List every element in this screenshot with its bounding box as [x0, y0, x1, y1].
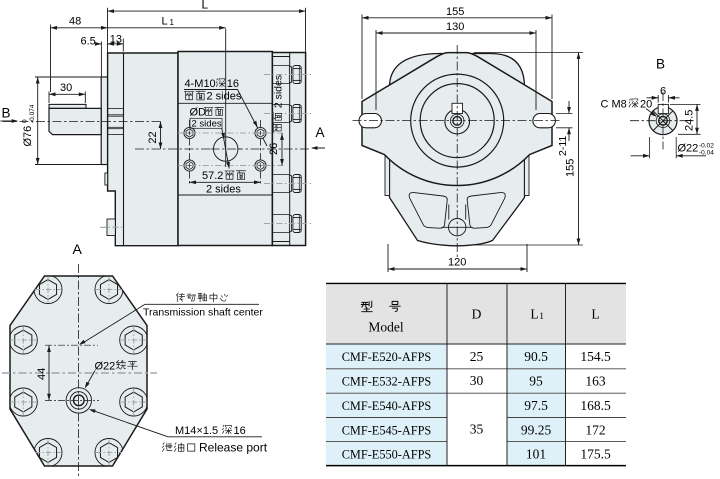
svg-text:1: 1: [170, 18, 175, 27]
svg-text:2 sides: 2 sides: [206, 184, 241, 196]
svg-text:25: 25: [470, 349, 484, 364]
svg-text:16: 16: [234, 425, 246, 437]
svg-text:101: 101: [526, 446, 546, 461]
svg-text:Ø22: Ø22: [678, 143, 699, 155]
svg-text:0: 0: [22, 119, 29, 123]
svg-text:CMF-E532-AFPS: CMF-E532-AFPS: [342, 375, 432, 389]
svg-text:Model: Model: [368, 320, 403, 335]
svg-text:-0.02: -0.02: [699, 143, 714, 150]
svg-text:1: 1: [539, 312, 544, 322]
svg-text:D: D: [472, 307, 482, 322]
svg-text:Ø76: Ø76: [22, 126, 34, 147]
svg-text:30: 30: [60, 82, 72, 94]
svg-text:16: 16: [227, 78, 239, 90]
svg-text:B: B: [2, 106, 11, 121]
svg-text:L: L: [162, 16, 168, 28]
svg-text:L: L: [202, 0, 209, 12]
svg-text:2 sides: 2 sides: [192, 118, 222, 129]
svg-text:163: 163: [585, 374, 606, 389]
svg-text:35: 35: [470, 422, 484, 437]
svg-text:48: 48: [69, 16, 81, 28]
svg-text:168.5: 168.5: [580, 398, 611, 413]
svg-text:4-M10: 4-M10: [185, 78, 216, 90]
svg-text:30: 30: [470, 373, 484, 388]
svg-text:2 sides: 2 sides: [273, 75, 285, 108]
svg-text:Transmission shaft center: Transmission shaft center: [143, 307, 263, 319]
svg-text:L: L: [530, 307, 538, 322]
svg-text:26: 26: [268, 143, 280, 155]
svg-text:Release port: Release port: [199, 441, 268, 455]
svg-text:Ø22: Ø22: [95, 361, 116, 373]
svg-text:A: A: [73, 241, 83, 257]
svg-text:44: 44: [36, 368, 48, 380]
svg-text:22: 22: [147, 131, 159, 143]
svg-text:2-11: 2-11: [557, 136, 569, 156]
svg-text:154.5: 154.5: [580, 349, 611, 364]
svg-text:97.5: 97.5: [524, 398, 548, 413]
svg-text:6.5: 6.5: [81, 36, 96, 48]
svg-text:B: B: [656, 57, 665, 72]
svg-text:95: 95: [529, 374, 543, 389]
svg-text:2 sides: 2 sides: [207, 91, 242, 103]
svg-text:13: 13: [110, 34, 122, 46]
svg-text:M14×1.5: M14×1.5: [175, 425, 218, 437]
svg-text:172: 172: [585, 422, 605, 437]
svg-text:ØD: ØD: [190, 107, 207, 119]
svg-text:L: L: [591, 307, 599, 322]
svg-text:CMF-E545-AFPS: CMF-E545-AFPS: [342, 423, 432, 437]
svg-text:CMF-E540-AFPS: CMF-E540-AFPS: [342, 399, 432, 413]
svg-text:6: 6: [660, 86, 666, 98]
svg-text:A: A: [316, 125, 325, 140]
svg-text:24.5: 24.5: [684, 110, 696, 131]
svg-text:C M8: C M8: [601, 99, 627, 111]
svg-text:90.5: 90.5: [524, 349, 548, 364]
svg-text:155: 155: [565, 159, 577, 177]
svg-text:CMF-E550-AFPS: CMF-E550-AFPS: [342, 447, 432, 461]
svg-text:57.2: 57.2: [202, 170, 223, 182]
svg-text:155: 155: [446, 6, 464, 18]
svg-text:-0.074: -0.074: [29, 104, 36, 123]
svg-text:130: 130: [446, 21, 464, 33]
svg-text:175.5: 175.5: [580, 446, 611, 461]
svg-text:CMF-E520-AFPS: CMF-E520-AFPS: [342, 350, 432, 364]
svg-text:99.25: 99.25: [521, 422, 552, 437]
svg-text:120: 120: [448, 257, 466, 269]
